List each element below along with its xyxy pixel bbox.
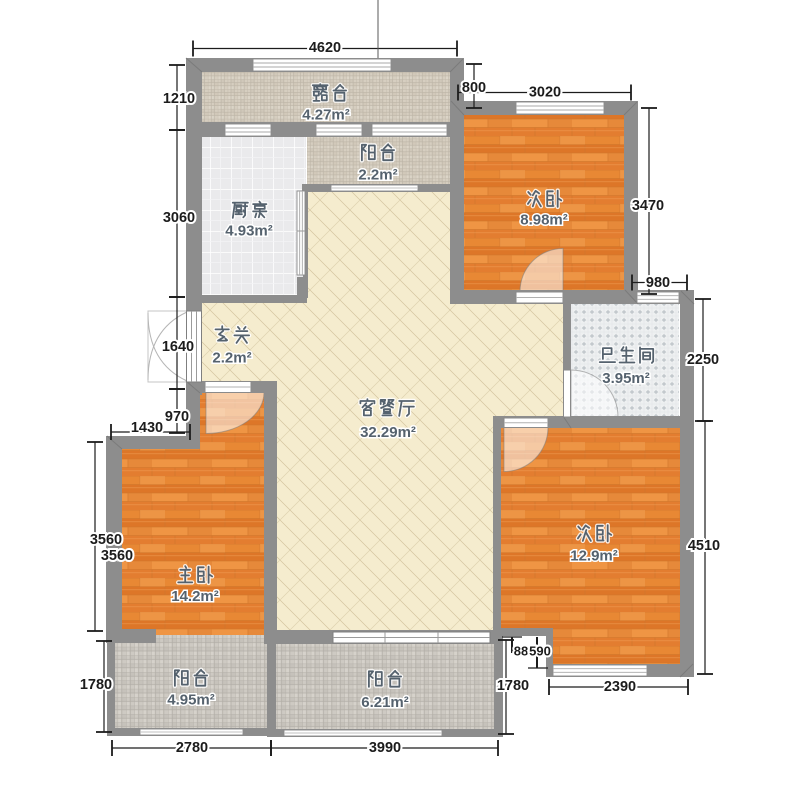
- svg-text:3560: 3560: [101, 548, 133, 564]
- svg-text:3470: 3470: [632, 198, 664, 214]
- svg-text:2250: 2250: [687, 352, 719, 368]
- svg-text:3060: 3060: [163, 210, 195, 226]
- svg-text:970: 970: [165, 409, 189, 425]
- svg-text:1780: 1780: [80, 677, 112, 693]
- svg-text:1780: 1780: [497, 678, 529, 694]
- svg-text:2390: 2390: [604, 679, 636, 695]
- svg-text:4.93m²: 4.93m²: [225, 223, 273, 240]
- svg-text:590: 590: [529, 644, 551, 659]
- svg-text:32.29m²: 32.29m²: [360, 424, 416, 441]
- svg-text:4.27m²: 4.27m²: [302, 107, 350, 124]
- svg-text:980: 980: [646, 275, 670, 291]
- svg-text:4.95m²: 4.95m²: [167, 692, 215, 709]
- svg-text:1640: 1640: [162, 339, 194, 355]
- svg-text:1430: 1430: [131, 420, 163, 436]
- svg-text:2780: 2780: [176, 740, 208, 756]
- svg-text:3.95m²: 3.95m²: [602, 370, 650, 387]
- svg-text:800: 800: [462, 80, 486, 96]
- svg-text:8.98m²: 8.98m²: [520, 212, 568, 229]
- svg-text:3020: 3020: [529, 85, 561, 101]
- svg-text:4510: 4510: [688, 538, 720, 554]
- svg-text:1210: 1210: [163, 91, 195, 107]
- svg-text:3990: 3990: [369, 740, 401, 756]
- svg-text:3560: 3560: [90, 532, 122, 548]
- svg-text:12.9m²: 12.9m²: [570, 548, 618, 565]
- svg-text:14.2m²: 14.2m²: [171, 588, 219, 605]
- svg-text:2.2m²: 2.2m²: [358, 167, 397, 184]
- svg-text:4620: 4620: [309, 40, 341, 56]
- svg-text:2.2m²: 2.2m²: [212, 350, 251, 367]
- svg-text:6.21m²: 6.21m²: [361, 694, 409, 711]
- svg-text:88: 88: [514, 644, 528, 659]
